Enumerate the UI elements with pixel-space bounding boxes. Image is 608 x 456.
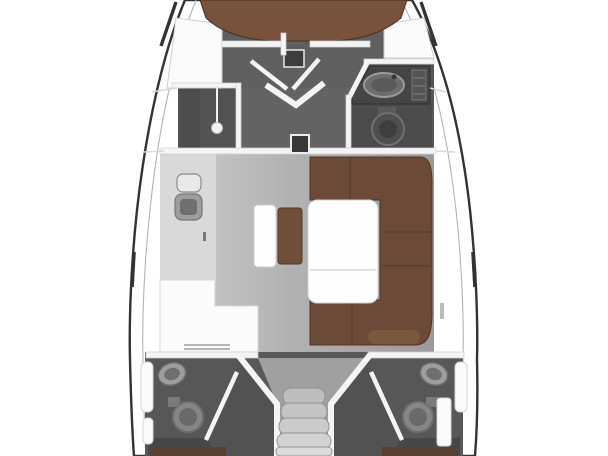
deck-line-starboard-mid bbox=[436, 151, 455, 152]
shower-right-wall bbox=[236, 83, 241, 154]
yacht-floorplan bbox=[0, 0, 608, 456]
port-aft-locker-strip-2 bbox=[143, 418, 153, 444]
galley-sink-basin bbox=[180, 199, 197, 215]
port-aft-toilet-bowl bbox=[179, 408, 197, 426]
chainplate-mark-starboard bbox=[473, 252, 475, 287]
forward-bulkhead-port bbox=[222, 41, 284, 47]
companionway-step-5 bbox=[276, 447, 332, 456]
forward-head-sink-basin bbox=[371, 78, 397, 92]
floorplan-svg bbox=[0, 0, 608, 456]
forward-bulkhead-starboard bbox=[310, 41, 370, 47]
chainplate-mark-port bbox=[132, 252, 134, 287]
galley-sink-top bbox=[177, 174, 201, 192]
deck-line-port-mid bbox=[144, 151, 164, 152]
forward-head-faucet bbox=[392, 75, 397, 80]
companionway-step-1 bbox=[283, 388, 325, 405]
companionway-step-2 bbox=[281, 403, 327, 420]
door-hinge-stub bbox=[281, 33, 286, 55]
settee-corner-cushion bbox=[368, 330, 420, 344]
galley-handle-mark bbox=[203, 232, 206, 241]
starboard-aft-berth-strip bbox=[382, 447, 456, 456]
forward-hatch-step bbox=[284, 50, 304, 67]
aft-bulkhead-starboard bbox=[368, 352, 464, 358]
forward-head-left-wall bbox=[346, 95, 351, 153]
shower-bench bbox=[180, 88, 200, 150]
starboard-aft-door-panel bbox=[437, 398, 451, 446]
saloon-bench-white bbox=[254, 205, 276, 267]
forward-head-towel-panel bbox=[412, 70, 426, 100]
starboard-aft-toilet-bowl bbox=[409, 408, 427, 426]
port-aft-berth-strip bbox=[152, 447, 226, 456]
companionway-step-3 bbox=[279, 418, 329, 435]
forward-head-top-wall bbox=[364, 59, 434, 64]
mast-post bbox=[291, 135, 309, 153]
saloon-table bbox=[308, 200, 378, 303]
shower-top-wall bbox=[172, 83, 238, 88]
bow-locker-port bbox=[167, 18, 222, 88]
deck-vent-mark-starboard bbox=[440, 303, 444, 319]
shower-head-icon bbox=[212, 123, 223, 134]
forward-toilet-bowl bbox=[379, 120, 397, 138]
starboard-aft-locker-strip bbox=[455, 362, 467, 412]
saloon-bench-brown bbox=[278, 208, 302, 264]
port-aft-locker-strip bbox=[141, 362, 153, 412]
